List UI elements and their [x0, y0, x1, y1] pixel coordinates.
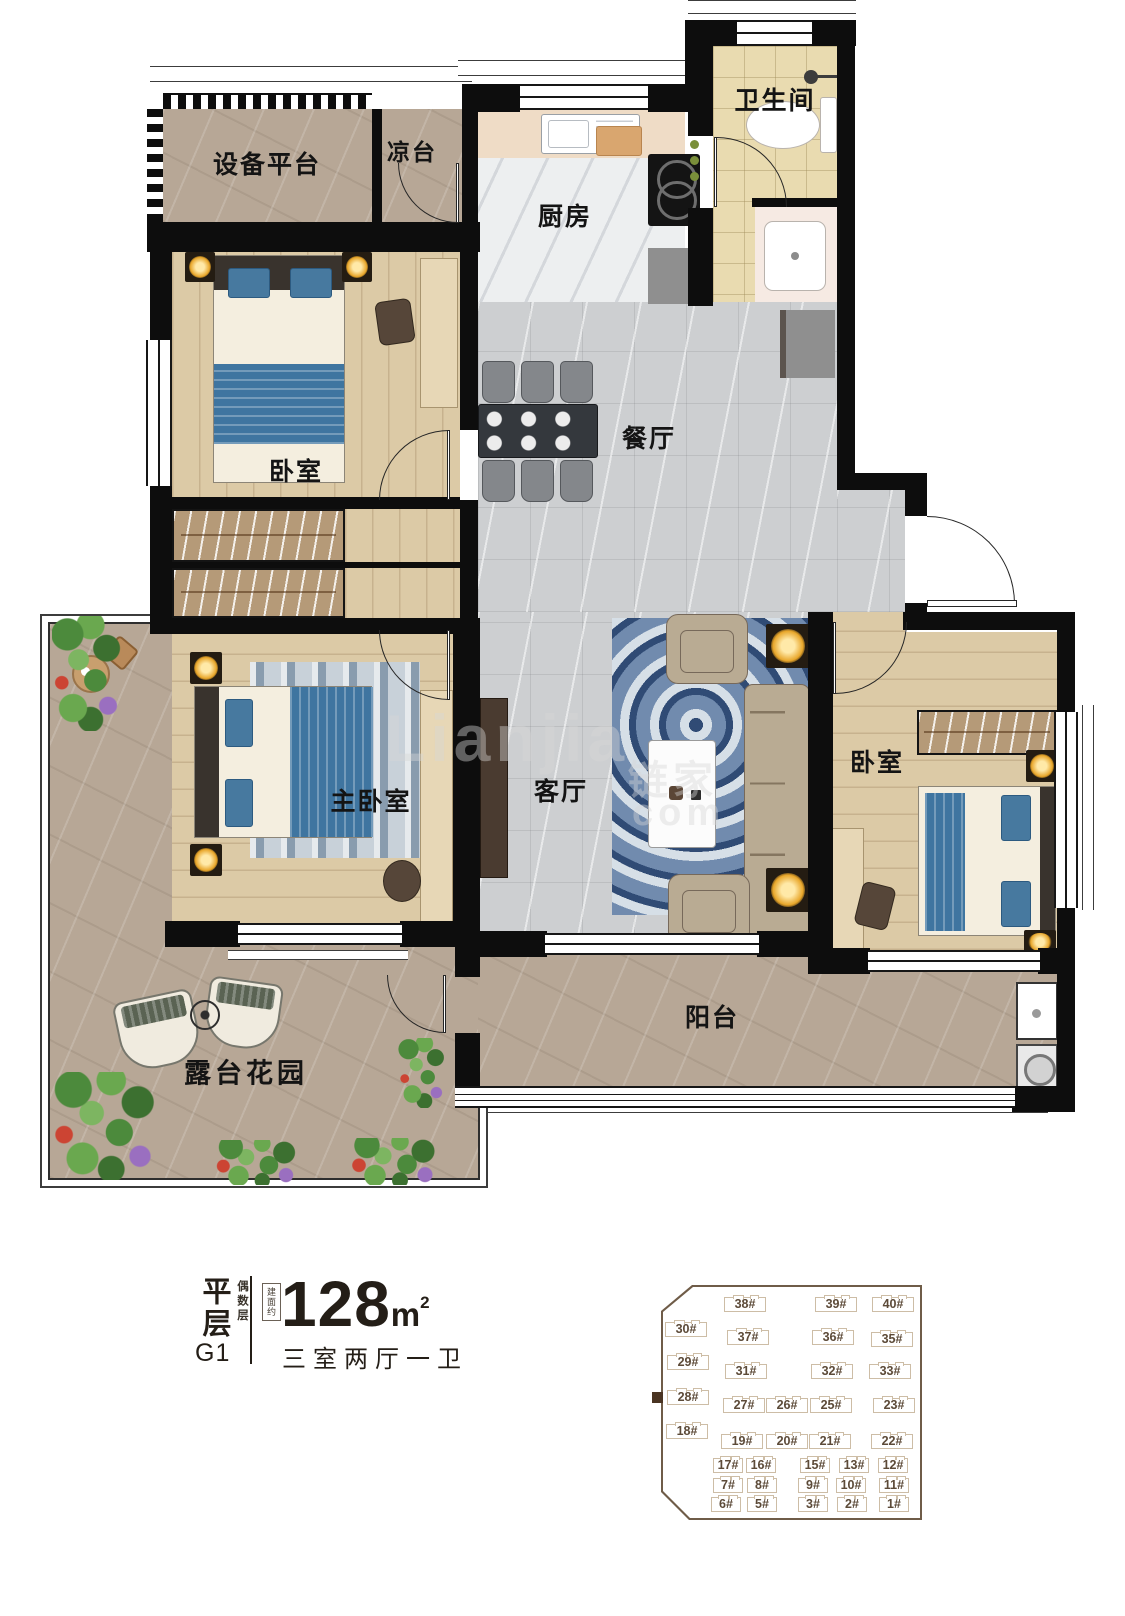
site-building: 27#	[723, 1398, 765, 1413]
dining-chair	[521, 361, 554, 403]
cutting-board	[596, 126, 642, 156]
wardrobe	[917, 710, 1057, 755]
door-leaf	[443, 975, 446, 1033]
balcony-floor	[478, 955, 1060, 1088]
building-number: 23#	[873, 1398, 915, 1413]
site-building: 37#	[727, 1330, 769, 1345]
wall	[455, 1033, 480, 1091]
window	[520, 84, 648, 110]
site-building: 12#	[878, 1458, 908, 1473]
desk	[420, 258, 458, 408]
wall	[400, 921, 460, 947]
room-label-bedroom-top: 卧室	[269, 452, 323, 488]
building-number: 1#	[879, 1497, 909, 1512]
floor-lamp	[766, 624, 810, 668]
building-number: 39#	[815, 1297, 857, 1312]
wall	[460, 500, 478, 618]
dining-chair	[560, 460, 593, 502]
room-label-balcony: 阳台	[685, 998, 739, 1034]
door-leaf	[714, 137, 717, 207]
pillow	[290, 268, 332, 298]
building-number: 29#	[667, 1355, 709, 1370]
plants	[398, 1038, 446, 1108]
wall	[808, 948, 870, 974]
site-building: 15#	[800, 1458, 830, 1473]
site-building: 17#	[713, 1458, 743, 1473]
site-building: 36#	[812, 1330, 854, 1345]
armchair	[666, 614, 748, 684]
chair	[374, 298, 416, 347]
door-leaf-entry	[927, 600, 1017, 607]
building-number: 22#	[871, 1434, 913, 1449]
building-number: 6#	[711, 1497, 741, 1512]
wall	[1038, 948, 1075, 974]
laundry-sink	[1016, 982, 1058, 1040]
wall	[150, 562, 460, 568]
plants	[345, 1138, 445, 1185]
room-label-cool-terrace: 凉台	[387, 133, 437, 167]
toilet-tank	[820, 97, 837, 153]
wall	[453, 618, 480, 937]
floor-parity-label: 偶数层	[234, 1280, 250, 1324]
wall	[808, 612, 833, 972]
door-leaf	[447, 430, 450, 500]
building-number: 37#	[727, 1330, 769, 1345]
site-building: 11#	[879, 1478, 909, 1493]
window	[737, 20, 812, 46]
dining-chair	[521, 460, 554, 502]
room-label-living-room: 客厅	[534, 772, 588, 808]
wall	[837, 20, 855, 478]
building-number: 9#	[798, 1478, 828, 1493]
pillow	[228, 268, 270, 298]
floor-lamp	[766, 868, 810, 912]
wall	[150, 252, 172, 340]
site-building: 39#	[815, 1297, 857, 1312]
building-number: 28#	[667, 1390, 709, 1405]
door-leaf	[833, 622, 836, 694]
facade-line	[1082, 705, 1094, 910]
blanket	[214, 364, 344, 444]
window	[1054, 712, 1078, 908]
layout-description: 三室两厅一卫	[282, 1339, 468, 1374]
site-building: 40#	[872, 1297, 914, 1312]
unit-code-label: G1	[195, 1339, 230, 1368]
room-label-master-bedroom: 主卧室	[330, 782, 411, 818]
pillow	[1001, 795, 1031, 841]
building-number: 16#	[746, 1458, 776, 1473]
wall	[462, 109, 478, 222]
window	[238, 923, 402, 945]
site-building: 8#	[747, 1478, 777, 1493]
kitchen-cabinet	[648, 248, 692, 304]
room-label-kitchen: 厨房	[538, 197, 592, 233]
site-building: 26#	[766, 1398, 808, 1413]
site-building: 10#	[836, 1478, 866, 1493]
entry-hall-floor	[837, 490, 905, 612]
site-building: 23#	[873, 1398, 915, 1413]
closet-corridor-floor	[345, 497, 460, 618]
site-building: 31#	[725, 1364, 767, 1379]
site-building: 1#	[879, 1497, 909, 1512]
site-building: 35#	[871, 1332, 913, 1347]
spice-jars	[690, 140, 699, 149]
floor-type-label: 平层	[193, 1276, 235, 1340]
site-building: 30#	[665, 1322, 707, 1337]
hall-cabinet	[780, 310, 835, 378]
wall	[688, 88, 713, 136]
wall	[903, 612, 1075, 630]
site-building: 22#	[871, 1434, 913, 1449]
site-building: 28#	[667, 1390, 709, 1405]
door-leaf	[447, 630, 450, 700]
building-number: 17#	[713, 1458, 743, 1473]
facade-line	[458, 60, 702, 76]
site-building: 13#	[839, 1458, 869, 1473]
site-building: 9#	[798, 1478, 828, 1493]
area-prefix-label: 建面约	[262, 1283, 281, 1321]
site-building: 38#	[724, 1297, 766, 1312]
building-number: 13#	[839, 1458, 869, 1473]
compass-icon	[190, 1000, 220, 1030]
building-number: 8#	[747, 1478, 777, 1493]
window	[868, 950, 1040, 972]
site-building: 16#	[746, 1458, 776, 1473]
room-label-equipment-platform: 设备平台	[213, 145, 321, 181]
nightstand-lamp	[342, 252, 372, 282]
wall	[705, 20, 737, 46]
site-building: 2#	[837, 1497, 867, 1512]
wardrobe	[172, 509, 345, 562]
highlight-marker	[652, 1392, 663, 1403]
site-building: 20#	[766, 1434, 808, 1449]
building-number: 15#	[800, 1458, 830, 1473]
room-label-bathroom: 卫生间	[734, 81, 815, 117]
building-number: 32#	[811, 1364, 853, 1379]
pillow	[225, 699, 253, 747]
area-unit: m	[391, 1296, 420, 1333]
bed	[918, 786, 1056, 936]
facade-line	[428, 1112, 1048, 1120]
facade-line	[150, 66, 472, 82]
building-number: 27#	[723, 1398, 765, 1413]
site-map-buildings: 38#39#40#30#37#36#35#29#31#32#33#28#27#2…	[661, 1285, 922, 1520]
plants	[52, 616, 122, 731]
floorplan-page: 设备平台 凉台 厨房 卫生间 卧室 餐厅 主卧室 客厅 卧室 阳台 露台花园 L…	[0, 0, 1125, 1616]
wall	[757, 931, 808, 957]
wall	[1012, 1086, 1075, 1112]
room-label-dining: 餐厅	[622, 419, 676, 455]
site-building: 19#	[721, 1434, 763, 1449]
pillow	[1001, 881, 1031, 927]
dining-chair	[482, 361, 515, 403]
facade-line	[228, 950, 408, 960]
dining-chair	[482, 460, 515, 502]
nightstand-lamp	[185, 252, 215, 282]
facade-line	[688, 0, 856, 14]
site-building: 25#	[810, 1398, 852, 1413]
area-value: 128m2	[281, 1267, 430, 1341]
coffee-table	[648, 740, 716, 848]
site-building: 21#	[809, 1434, 851, 1449]
room-label-bedroom-right: 卧室	[850, 743, 904, 779]
wall	[455, 931, 480, 977]
wardrobe	[172, 568, 345, 618]
wall	[1057, 630, 1075, 712]
site-building: 18#	[666, 1424, 708, 1439]
building-number: 35#	[871, 1332, 913, 1347]
building-number: 7#	[713, 1478, 743, 1493]
info-panel: 平层 G1 偶数层 建面约 128m2 三室两厅一卫	[185, 1255, 465, 1415]
building-number: 40#	[872, 1297, 914, 1312]
plants	[210, 1140, 305, 1185]
bed	[213, 255, 345, 483]
building-number: 10#	[836, 1478, 866, 1493]
wall	[462, 84, 520, 112]
wall	[372, 109, 382, 222]
building-number: 30#	[665, 1322, 707, 1337]
chair	[383, 860, 421, 902]
site-building: 7#	[713, 1478, 743, 1493]
building-number: 2#	[837, 1497, 867, 1512]
building-number: 36#	[812, 1330, 854, 1345]
washbasin	[764, 221, 826, 291]
nightstand-lamp	[190, 652, 222, 684]
building-number: 3#	[798, 1497, 828, 1512]
wall-vent-top	[163, 93, 372, 109]
building-number: 18#	[666, 1424, 708, 1439]
site-building: 5#	[747, 1497, 777, 1512]
dining-table	[478, 404, 598, 458]
wall	[688, 208, 713, 306]
building-number: 33#	[869, 1364, 911, 1379]
bed-headboard	[1040, 787, 1055, 935]
wall-vent-left	[147, 109, 163, 222]
wall	[1057, 972, 1075, 1094]
site-building: 3#	[798, 1497, 828, 1512]
building-number: 5#	[747, 1497, 777, 1512]
building-number: 11#	[879, 1478, 909, 1493]
wall	[165, 921, 240, 947]
room-label-terrace-garden: 露台花园	[184, 1052, 308, 1091]
area-exponent: 2	[420, 1293, 429, 1312]
site-building: 6#	[711, 1497, 741, 1512]
door-leaf	[456, 163, 459, 223]
blanket	[925, 793, 965, 931]
nightstand-lamp	[190, 844, 222, 876]
building-number: 19#	[721, 1434, 763, 1449]
bed-headboard	[195, 687, 219, 837]
wall	[460, 252, 478, 430]
building-number: 26#	[766, 1398, 808, 1413]
site-map: 38#39#40#30#37#36#35#29#31#32#33#28#27#2…	[661, 1285, 922, 1520]
plants	[48, 1072, 163, 1180]
building-number: 21#	[809, 1434, 851, 1449]
building-number: 31#	[725, 1364, 767, 1379]
desk	[830, 828, 864, 952]
dining-chair	[560, 361, 593, 403]
site-building: 33#	[869, 1364, 911, 1379]
desk	[420, 690, 453, 928]
site-building: 29#	[667, 1355, 709, 1370]
area-number: 128	[281, 1268, 391, 1340]
washing-machine	[1016, 1044, 1058, 1090]
building-number: 38#	[724, 1297, 766, 1312]
site-building: 32#	[811, 1364, 853, 1379]
door-arc-entry	[927, 516, 1015, 604]
window	[545, 933, 759, 955]
pillow	[225, 779, 253, 827]
wall	[648, 84, 688, 112]
divider-line	[250, 1276, 252, 1364]
wall	[905, 488, 927, 516]
building-number: 20#	[766, 1434, 808, 1449]
balcony-railing	[455, 1086, 1015, 1108]
window	[146, 340, 172, 486]
building-number: 25#	[810, 1398, 852, 1413]
wall	[147, 222, 480, 252]
tv-cabinet	[480, 698, 508, 878]
building-number: 12#	[878, 1458, 908, 1473]
